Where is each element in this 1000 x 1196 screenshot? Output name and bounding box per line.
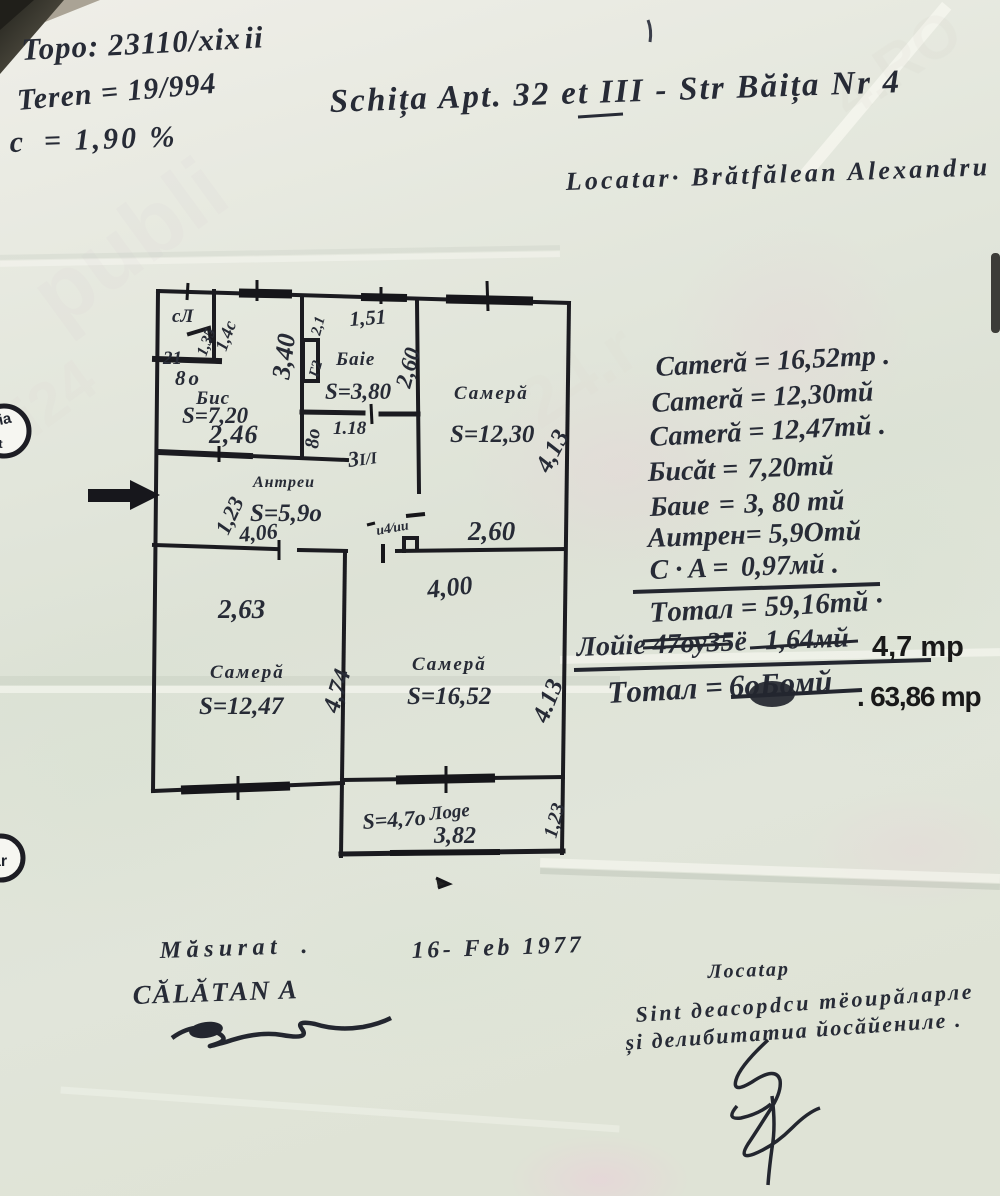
svg-text:2,46: 2,46	[208, 420, 259, 449]
svg-text:2,63: 2,63	[217, 594, 265, 624]
svg-text:4,06: 4,06	[237, 518, 279, 547]
svg-text:1,51: 1,51	[349, 304, 387, 331]
svg-text:S=12,47: S=12,47	[199, 693, 285, 720]
svg-text:ar: ar	[0, 853, 7, 870]
svg-text:4,7 mp: 4,7 mp	[872, 631, 964, 663]
svg-text:4,00: 4,00	[425, 570, 474, 604]
svg-text:2,60: 2,60	[467, 516, 516, 546]
svg-text:S=12,30: S=12,30	[450, 421, 535, 448]
svg-text:C · A = 0,97мй .: C · A = 0,97мй .	[649, 548, 839, 586]
svg-text:Лoсatар: Лoсatар	[706, 958, 790, 983]
svg-text:Самерӑ: Самерӑ	[210, 662, 285, 683]
svg-text:8о: 8о	[175, 366, 202, 390]
svg-text:Бuсăt = 7,20mй: Бuсăt = 7,20mй	[646, 451, 834, 489]
svg-text:1.18: 1.18	[333, 418, 367, 439]
svg-text:8о: 8о	[301, 428, 325, 450]
svg-text:Самерӑ: Самерӑ	[412, 654, 487, 675]
svg-text:S=3,80: S=3,80	[325, 379, 392, 404]
svg-text:S=16,52: S=16,52	[407, 683, 491, 710]
svg-text:. 63,86 mp: . 63,86 mp	[857, 681, 981, 712]
svg-text:3,82: 3,82	[433, 823, 476, 849]
svg-text:c = 1,90 %: c = 1,90 %	[9, 120, 178, 159]
svg-text:Лoge: Лoge	[427, 800, 471, 825]
svg-text:st: st	[0, 437, 3, 451]
svg-text:CӐLӐТAN A: CӐLӐТAN A	[132, 973, 299, 1010]
svg-text:cЛ: cЛ	[172, 306, 194, 327]
svg-text:Aнтреи: Aнтреи	[252, 474, 315, 491]
svg-text:Măsurat .: Măsurat .	[158, 933, 313, 964]
svg-text:S=4,7о: S=4,7о	[362, 805, 427, 834]
svg-text:Самерӑ: Самерӑ	[454, 383, 529, 404]
svg-text:Бaie: Бaie	[335, 349, 375, 370]
